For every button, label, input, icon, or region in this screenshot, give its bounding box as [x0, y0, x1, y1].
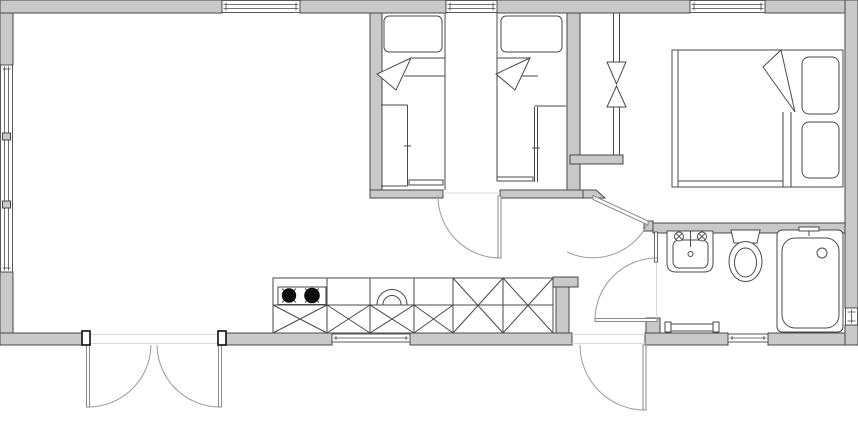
wall-bath-thin	[655, 232, 658, 262]
bed2-duvet-fold	[496, 58, 530, 90]
hall-wardrobe-arrow-up	[607, 86, 626, 107]
wall-hall-stub	[570, 155, 623, 164]
bathtub-faucet	[799, 227, 819, 231]
wall-bedrooms-south-a	[370, 190, 443, 198]
master-pillow-a	[802, 57, 839, 114]
bed2-foot	[497, 177, 533, 181]
window-bedroom-top	[446, 1, 497, 13]
door-bedroom-leaf	[498, 196, 501, 258]
window-bath-bottom	[728, 334, 768, 342]
burner-1	[282, 288, 296, 302]
window-left-mullion-a	[3, 133, 11, 140]
entrance-jamb-left	[82, 331, 90, 345]
bathroom-bench-cap-left	[665, 322, 671, 332]
door-entrance-left-arc	[88, 345, 151, 407]
wall-bedrooms-south-b	[500, 190, 583, 198]
hall-wardrobe-arrow-down	[607, 62, 626, 84]
wall-bottom-c	[410, 333, 572, 345]
bathroom-bench	[671, 324, 713, 331]
wall-top-d	[765, 0, 858, 13]
wall-bottom-d	[645, 333, 728, 345]
bathroom-bench-cap-right	[713, 322, 719, 332]
window-master-top	[690, 1, 765, 13]
door-master-leaf	[593, 196, 648, 226]
entrance-jamb-right	[218, 331, 226, 345]
wall-right-a	[845, 0, 858, 308]
burner-2	[304, 288, 320, 304]
door-entrance-right-arc	[157, 345, 220, 407]
window-living-top	[222, 1, 300, 13]
bathtub-drain	[817, 248, 827, 258]
window-left-mullion-b	[3, 201, 11, 208]
master-pillow-b	[802, 122, 839, 178]
wall-bottom-a	[0, 333, 85, 345]
wall-kitchen-stub	[553, 277, 578, 287]
wall-right-b	[845, 325, 858, 345]
floor-plan	[0, 0, 858, 426]
bathtub-inner	[782, 238, 839, 328]
door-back-leaf	[643, 345, 646, 410]
door-entrance-left-leaf	[87, 345, 90, 407]
wall-top-b	[300, 0, 446, 13]
wall-bottom-e	[768, 333, 845, 345]
wall-top-c	[497, 0, 690, 13]
door-entrance-right-leaf	[219, 345, 222, 407]
door-bathroom-arc	[595, 258, 657, 320]
wall-kitchen-east	[556, 287, 569, 333]
wall-top-a	[0, 0, 222, 13]
bed1-foot	[409, 180, 443, 185]
door-bathroom-leaf	[595, 319, 657, 322]
toilet-bowl-inner	[735, 248, 757, 277]
window-kitchen-bottom	[332, 334, 410, 342]
bed1-pillow	[384, 16, 442, 52]
floor-plan-page	[0, 0, 858, 426]
door-back-arc	[580, 345, 644, 410]
wall-bedrooms-west	[370, 13, 382, 198]
window-living-left	[1, 65, 13, 272]
window-bath-right	[846, 308, 858, 325]
door-master-arc	[567, 223, 648, 258]
wall-bottom-b	[222, 333, 332, 345]
bed2-pillow	[501, 16, 562, 52]
door-bedroom-arc	[438, 196, 500, 258]
bathroom-sink-drain	[688, 252, 693, 257]
wall-left-a	[0, 13, 13, 65]
